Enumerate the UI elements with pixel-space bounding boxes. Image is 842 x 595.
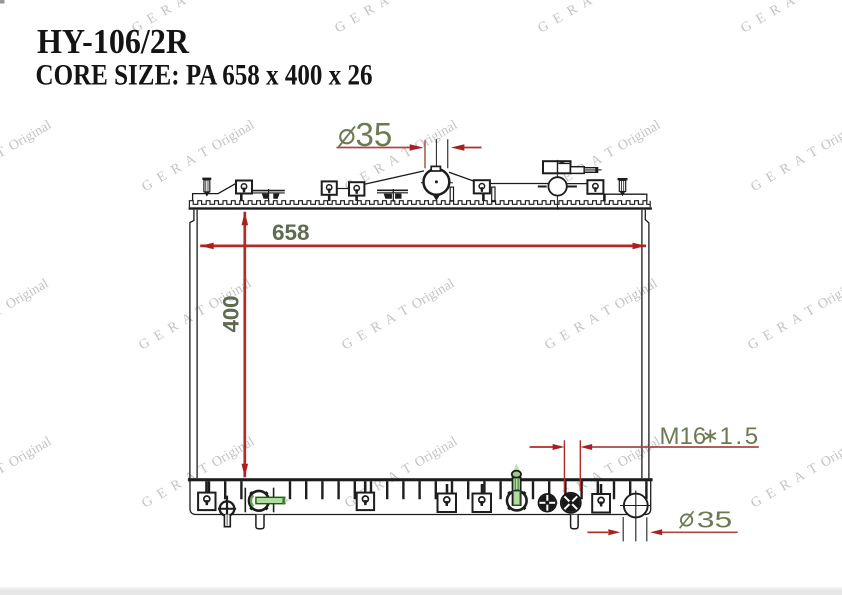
svg-text:1.5: 1.5	[720, 423, 761, 450]
svg-text:G E R A TOriginal: G E R A TOriginal	[745, 276, 842, 353]
svg-text:HY-106/2R: HY-106/2R	[37, 23, 190, 61]
svg-text:G E R A TOriginal: G E R A TOriginal	[748, 434, 842, 511]
svg-text:400: 400	[219, 296, 244, 333]
svg-text:G E R A TOriginal: G E R A TOriginal	[0, 434, 54, 511]
svg-text:658: 658	[272, 220, 310, 245]
svg-text:M16: M16	[660, 423, 707, 450]
svg-text:G E R A TOriginal: G E R A TOriginal	[535, 0, 653, 36]
svg-text:G E R A TOriginal: G E R A TOriginal	[0, 276, 51, 353]
svg-text:G E R A TOriginal: G E R A TOriginal	[332, 0, 450, 36]
svg-text:G E R A TOriginal: G E R A TOriginal	[0, 118, 54, 195]
svg-text:G E R A TOriginal: G E R A TOriginal	[542, 276, 660, 353]
svg-text:G E R A TOriginal: G E R A TOriginal	[339, 276, 457, 353]
svg-text:G E R A TOriginal: G E R A TOriginal	[748, 118, 842, 195]
svg-text:35: 35	[356, 116, 393, 153]
svg-text:CORE SIZE: PA 658 x 400 x 26: CORE SIZE: PA 658 x 400 x 26	[36, 59, 373, 92]
svg-text:35: 35	[697, 506, 733, 532]
svg-text:G E R A TOriginal: G E R A TOriginal	[738, 0, 842, 36]
